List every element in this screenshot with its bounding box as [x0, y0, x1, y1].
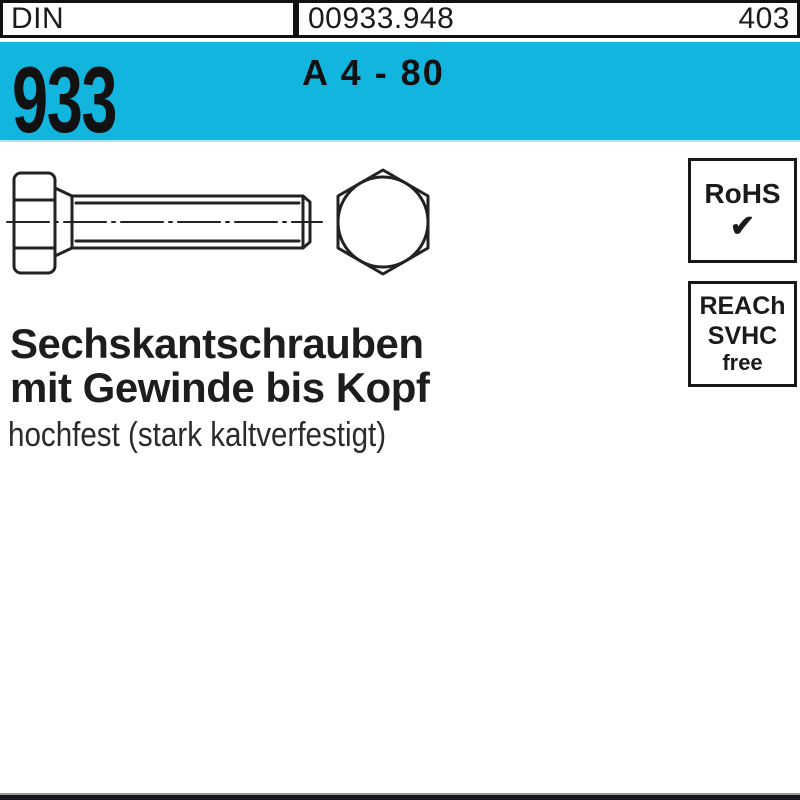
din-label-box: DIN — [0, 0, 296, 38]
rohs-label: RoHS — [704, 179, 780, 210]
reach-line-3: free — [722, 351, 762, 375]
product-title-line-2: mit Gewinde bis Kopf — [10, 366, 429, 410]
product-label-card: DIN 00933.948 403 933 A 4 - 80 — [0, 0, 800, 800]
product-subtitle: hochfest (stark kaltverfestigt) — [8, 417, 386, 454]
hex-bolt-head-front-view-icon — [338, 170, 428, 274]
reach-line-1: REACh — [699, 292, 785, 322]
page-number: 403 — [738, 2, 790, 36]
product-title: Sechskantschrauben mit Gewinde bis Kopf — [10, 322, 429, 410]
din-label: DIN — [11, 2, 64, 36]
bottom-bar — [0, 793, 800, 800]
standard-banner: 933 A 4 - 80 — [0, 42, 800, 142]
article-number: 00933.948 — [308, 2, 454, 36]
reach-line-2: SVHC — [708, 322, 777, 352]
material-grade: A 4 - 80 — [302, 55, 445, 91]
checkmark-icon: ✔ — [730, 212, 755, 242]
rohs-badge: RoHS ✔ — [688, 158, 797, 263]
reach-badge: REACh SVHC free — [688, 281, 797, 387]
bolt-technical-drawing — [0, 150, 470, 285]
din-standard-number: 933 — [12, 53, 116, 147]
header-bar: DIN 00933.948 403 — [0, 0, 800, 38]
article-number-box: 00933.948 403 — [296, 0, 800, 38]
product-title-line-1: Sechskantschrauben — [10, 322, 429, 366]
